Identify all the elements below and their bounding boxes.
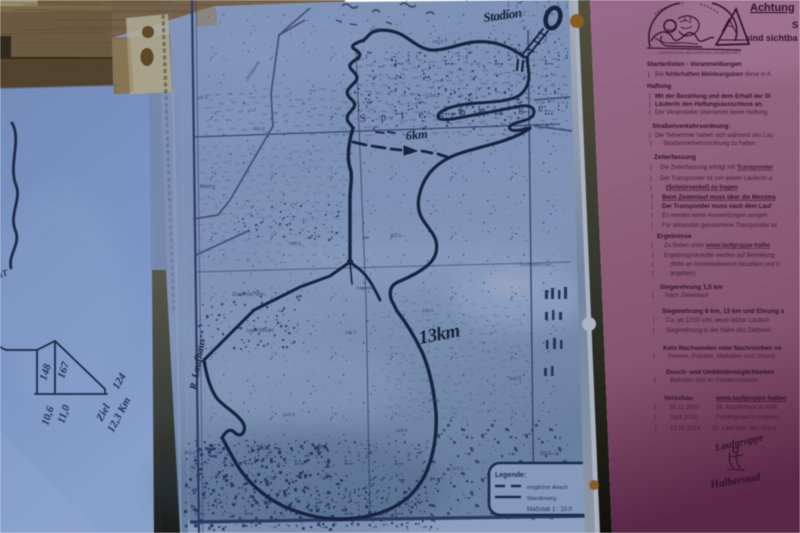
svg-text:6km: 6km [405, 127, 429, 143]
svg-text:www.laufgruppe-halber: www.laufgruppe-halber [715, 395, 787, 402]
svg-text:April 2014: April 2014 [670, 415, 698, 421]
svg-text:S: S [792, 20, 798, 31]
svg-text:Zeiterfassung: Zeiterfassung [654, 154, 696, 161]
svg-text:Achtung: Achtung [750, 2, 795, 14]
svg-text:437.5: 437.5 [370, 27, 382, 32]
svg-text:Ergebnisprotokolle werden auf: Ergebnisprotokolle werden auf Bestellung [664, 253, 775, 259]
svg-text:(Schnürsenkel) zu tragen: (Schnürsenkel) zu tragen [666, 185, 738, 191]
svg-text:Der Transponder ist von jedem: Der Transponder ist von jedem Läufer/in … [660, 176, 773, 182]
svg-text:Die Zeiterfassung erfolgt mit: Die Zeiterfassung erfolgt mit Transponde… [660, 165, 774, 171]
svg-text:Ca. ab 12:00 Uhr, wenn letzter: Ca. ab 12:00 Uhr, wenn letzter Läufer/i [666, 318, 769, 324]
svg-text:167.2: 167.2 [452, 466, 464, 471]
svg-text:163.5: 163.5 [432, 39, 444, 44]
svg-text:Frühlingslauf in Halbers: Frühlingslauf in Halbers [716, 415, 779, 421]
svg-text:Bei fehlerhaften Meldeangaben: Bei fehlerhaften Meldeangaben diese in A [655, 72, 771, 78]
svg-text:Wanderweg: Wanderweg [527, 496, 556, 502]
svg-text:Preisen, Pokalen, Medaillen un: Preisen, Pokalen, Medaillen und Urkund [668, 354, 775, 360]
svg-text:156.7: 156.7 [345, 330, 357, 335]
svg-text:fixberg: fixberg [200, 184, 215, 190]
svg-text:158.2: 158.2 [428, 93, 440, 98]
svg-text:Für abhanden gekommene Transpo: Für abhanden gekommene Transponder ist [662, 223, 777, 229]
svg-text:28.12.2013: 28.12.2013 [669, 405, 700, 411]
svg-text:163.8: 163.8 [184, 450, 196, 455]
svg-text:Straßenverkehrsordnung zu halt: Straßenverkehrsordnung zu halten. [663, 141, 757, 147]
svg-text:-141.8: -141.8 [252, 126, 265, 131]
svg-text:Starterlisten - Voranmeldungen: Starterlisten - Voranmeldungen [647, 61, 742, 68]
svg-text:Beim Zieleinlauf muss über die: Beim Zieleinlauf muss über die Messma [662, 195, 776, 201]
svg-text:13.09.2014: 13.09.2014 [670, 426, 701, 432]
svg-text:100.3: 100.3 [196, 95, 208, 100]
svg-text:Haftung: Haftung [647, 83, 671, 90]
svg-text:36. Karpfenlauf in Halb: 36. Karpfenlauf in Halb [716, 405, 778, 411]
svg-text:Vorschau: Vorschau [664, 395, 693, 402]
svg-text:162.8: 162.8 [510, 376, 522, 381]
svg-text:Die Teilnehmer haben sich währ: Die Teilnehmer haben sich während des La… [655, 133, 773, 139]
svg-text:Der Veranstalter übernimmt kei: Der Veranstalter übernimmt keine Haftung… [655, 110, 769, 116]
svg-text:Siegerehrung in der Nähe des Z: Siegerehrung in der Nähe des Zielberei [666, 328, 771, 334]
svg-text:Dusch- und Umkleidemöglichkeit: Dusch- und Umkleidemöglichkeiten [666, 369, 774, 376]
svg-text:angeben): angeben) [670, 271, 695, 277]
svg-text:Es werden keine Auswertungen a: Es werden keine Auswertungen ausgeh [662, 213, 767, 219]
svg-text:Kein Nachsenden oder Nachreich: Kein Nachsenden oder Nachreichen vo [663, 345, 782, 352]
svg-text:166.0: 166.0 [396, 428, 408, 433]
svg-text:Nach Zieleinlauf: Nach Zieleinlauf [665, 293, 708, 299]
svg-text:152.8: 152.8 [390, 233, 402, 238]
svg-text:Der Transponder muss nach dem: Der Transponder muss nach dem Lauf [662, 204, 772, 210]
svg-text:Siegerehrung 1,5 km: Siegerehrung 1,5 km [660, 284, 723, 291]
svg-text:172.0: 172.0 [428, 398, 440, 403]
svg-text:LAUFGRUPPE MEILENSTEIN HALBERS: LAUFGRUPPE MEILENSTEIN HALBERSTADT [658, 51, 742, 55]
svg-text:5613: 5613 [540, 451, 551, 457]
svg-text:194: 194 [362, 235, 369, 240]
svg-text:Befinden sich im Friedensstadi: Befinden sich im Friedensstadion [670, 378, 758, 384]
svg-text:Mit der Bezahlung und dem Erha: Mit der Bezahlung und dem Erhalt der St [655, 94, 771, 100]
svg-text:(Bitte an Anmeldebereich bezah: (Bitte an Anmeldebereich bezahlen und h [670, 262, 780, 268]
svg-text:22. Lauf über den Gläse: 22. Lauf über den Gläse [712, 426, 777, 432]
svg-text:Straßenverkehrsordnung:: Straßenverkehrsordnung: [652, 123, 730, 130]
svg-text:möglicher Anach: möglicher Anach [527, 485, 568, 491]
svg-text:Ergebnisse: Ergebnisse [657, 233, 692, 240]
svg-text:158.4: 158.4 [422, 308, 434, 313]
svg-text:Legende:: Legende: [495, 472, 526, 479]
svg-text:-158.0: -158.0 [288, 241, 301, 246]
svg-text:Zu finden unter www.laufgruppe: Zu finden unter www.laufgruppe-halbe [664, 243, 771, 249]
svg-text:Läufer/in den Haftungsausschlu: Läufer/in den Haftungsausschluss an. [655, 102, 764, 108]
svg-text:Siegerehrung 6 km, 13 km und E: Siegerehrung 6 km, 13 km und Ehrung a [662, 308, 785, 315]
svg-text:Glaserner Mön.: Glaserner Mön. [232, 292, 266, 298]
svg-text:Lewesfelsen: Lewesfelsen [246, 328, 274, 334]
svg-text:-165.8: -165.8 [282, 412, 295, 417]
svg-text:KLUSSIEBT.LWG: KLUSSIEBT.LWG [520, 262, 552, 267]
svg-text:Maßstab 1 : 10.0: Maßstab 1 : 10.0 [527, 507, 573, 513]
svg-text:Lageweg: Lageweg [357, 285, 375, 290]
svg-text:sind sichtba: sind sichtba [745, 33, 799, 43]
